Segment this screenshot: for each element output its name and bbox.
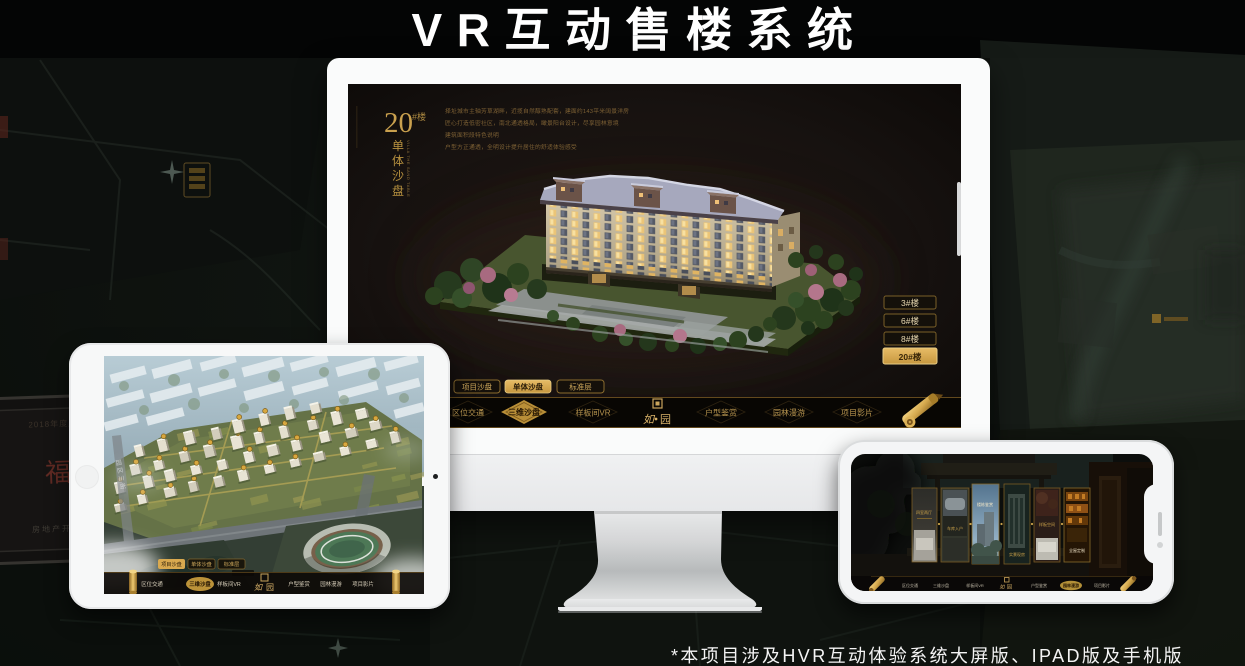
svg-text:标准层: 标准层 [569, 382, 592, 392]
svg-text:园: 园 [266, 583, 274, 592]
svg-text:全屋定制: 全屋定制 [1069, 547, 1085, 553]
svg-text:园林漫游: 园林漫游 [773, 408, 805, 418]
svg-text:项目影片: 项目影片 [1094, 582, 1110, 588]
svg-text:20: 20 [384, 107, 413, 139]
svg-text:项目影片: 项目影片 [352, 580, 374, 588]
svg-text:#楼: #楼 [412, 111, 426, 122]
svg-text:户型鉴赏: 户型鉴赏 [705, 408, 737, 418]
svg-text:样板空间: 样板空间 [1039, 521, 1055, 527]
svg-text:项目沙盘: 项目沙盘 [462, 382, 492, 392]
svg-text:四室两厅: 四室两厅 [916, 509, 932, 515]
svg-text:区位交通: 区位交通 [902, 582, 918, 588]
svg-text:园: 园 [1007, 585, 1012, 591]
svg-text:8#楼: 8#楼 [901, 334, 919, 344]
svg-text:标准层: 标准层 [224, 560, 240, 568]
svg-text:沙: 沙 [392, 169, 404, 183]
svg-text:区位交通: 区位交通 [452, 408, 484, 418]
svg-text:三维沙盘: 三维沙盘 [933, 582, 949, 588]
svg-text:户型鉴赏: 户型鉴赏 [1031, 582, 1047, 588]
svg-text:园: 园 [660, 413, 671, 426]
svg-text:体: 体 [392, 154, 404, 168]
svg-text:户型方正通透，全明设计提升居住的舒适体验感受: 户型方正通透，全明设计提升居住的舒适体验感受 [445, 143, 577, 151]
svg-text:样板间VR: 样板间VR [966, 582, 984, 588]
svg-text:单体沙盘: 单体沙盘 [513, 382, 543, 392]
svg-text:项目影片: 项目影片 [841, 408, 873, 418]
svg-text:车库入户: 车库入户 [947, 525, 963, 531]
svg-text:单体沙盘: 单体沙盘 [191, 560, 212, 568]
svg-text:6#楼: 6#楼 [901, 316, 919, 326]
svg-text:三维沙盘: 三维沙盘 [189, 580, 211, 588]
svg-text:样板间VR: 样板间VR [575, 408, 610, 418]
svg-text:3#楼: 3#楼 [901, 298, 919, 308]
svg-text:VILLA THE SAND TABLE: VILLA THE SAND TABLE [406, 140, 411, 197]
svg-text:区位交通: 区位交通 [141, 580, 163, 588]
svg-text:样板间VR: 样板间VR [217, 580, 241, 588]
svg-text:园林漫游: 园林漫游 [320, 580, 342, 588]
svg-text:择址城市主轴芳草湖畔，近揽自然醇熟配套，建面约143平米阔景: 择址城市主轴芳草湖畔，近揽自然醇熟配套，建面约143平米阔景洋房 [445, 107, 629, 115]
svg-text:如: 如 [254, 583, 263, 592]
svg-text:项目沙盘: 项目沙盘 [161, 560, 182, 568]
svg-text:户型鉴赏: 户型鉴赏 [288, 580, 310, 588]
svg-text:建筑面积段特色说明: 建筑面积段特色说明 [445, 131, 499, 139]
svg-text:匠心打造低密社区，南北通透格局，瞰景阳台设计，尽享园林意境: 匠心打造低密社区，南北通透格局，瞰景阳台设计，尽享园林意境 [445, 119, 619, 127]
svg-text:盘: 盘 [392, 183, 404, 198]
svg-text:实景现房: 实景现房 [1009, 551, 1025, 557]
svg-text:20#楼: 20#楼 [899, 352, 922, 362]
svg-text:单: 单 [392, 139, 404, 153]
svg-text:楼栋鉴赏: 楼栋鉴赏 [977, 501, 993, 507]
svg-text:三维沙盘: 三维沙盘 [508, 407, 540, 417]
svg-text:园林漫游: 园林漫游 [1063, 582, 1079, 588]
